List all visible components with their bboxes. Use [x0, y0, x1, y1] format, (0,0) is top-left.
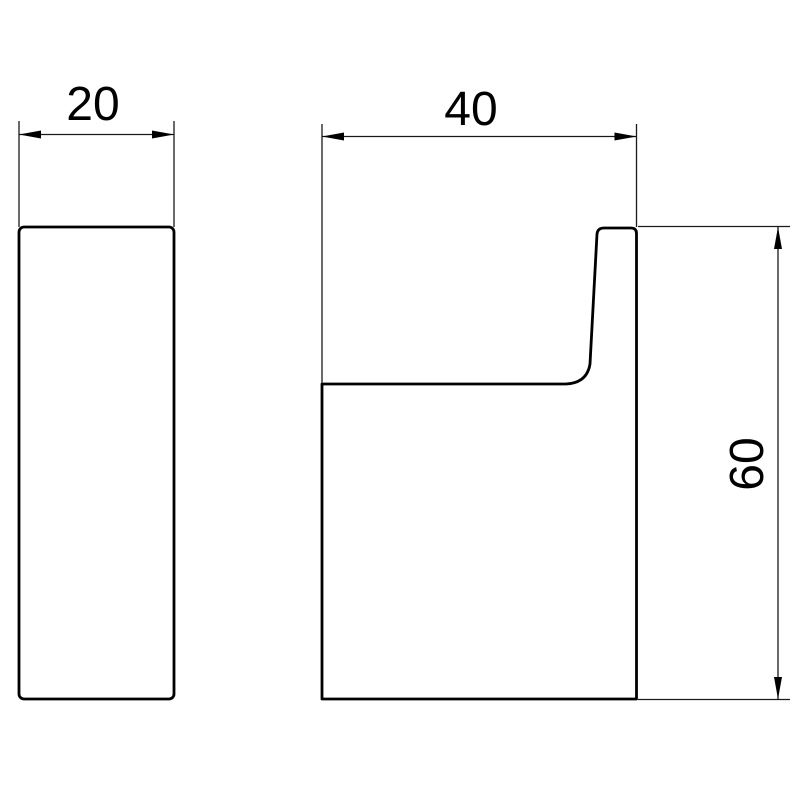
front-view-outline — [322, 228, 637, 699]
dim-60-arrow-top-icon — [774, 227, 782, 249]
side-view-outline — [19, 227, 174, 699]
dim-40-arrow-left-icon — [322, 133, 344, 141]
dim-40-arrow-right-icon — [615, 133, 637, 141]
dim-20-label: 20 — [66, 78, 119, 131]
dim-20-arrow-right-icon — [152, 131, 174, 139]
dimension-side-width: 20 — [19, 78, 174, 227]
drawing-page: 20 40 60 — [0, 0, 800, 800]
dimension-front-height: 60 — [638, 227, 790, 700]
dim-60-label: 60 — [721, 437, 774, 490]
drawing-canvas: 20 40 60 — [0, 0, 800, 800]
dim-40-label: 40 — [444, 83, 497, 136]
dim-20-arrow-left-icon — [19, 131, 41, 139]
front-view: 40 60 — [322, 83, 790, 700]
dimension-front-width: 40 — [322, 83, 637, 383]
dim-60-arrow-bottom-icon — [774, 677, 782, 699]
side-view: 20 — [19, 78, 174, 699]
